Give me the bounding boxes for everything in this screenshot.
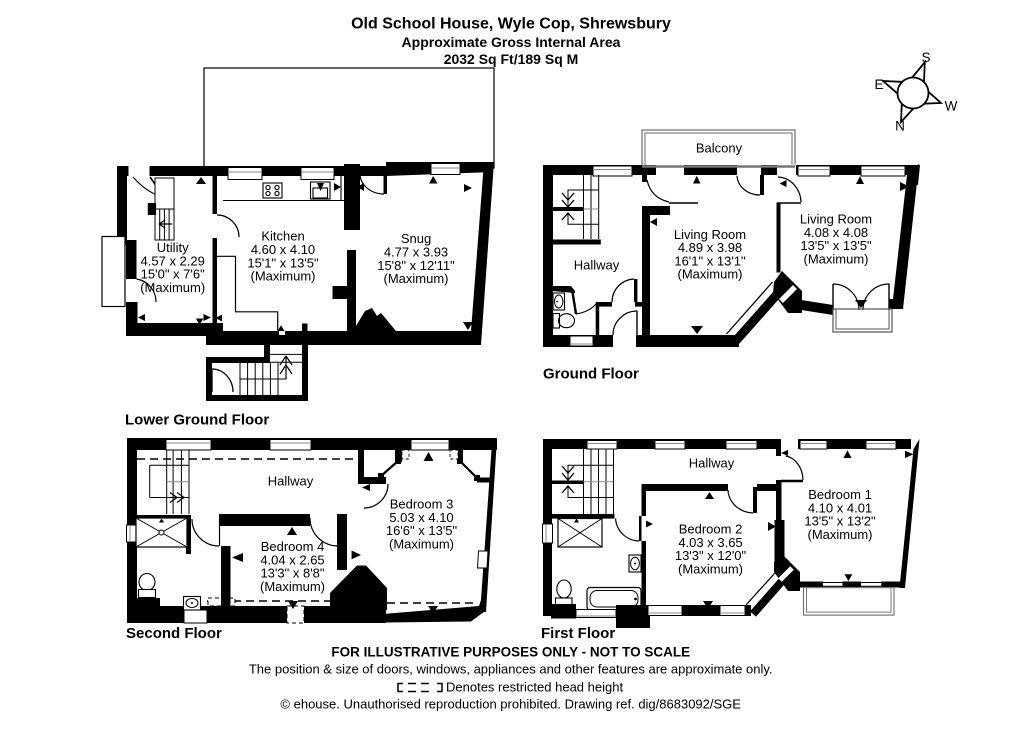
svg-text:(Maximum): (Maximum) bbox=[251, 269, 316, 284]
svg-text:Ground Floor: Ground Floor bbox=[543, 366, 639, 383]
svg-text:First Floor: First Floor bbox=[541, 625, 615, 642]
svg-text:Approximate Gross Internal Are: Approximate Gross Internal Area bbox=[402, 34, 621, 50]
svg-text:(Maximum): (Maximum) bbox=[389, 536, 454, 551]
svg-text:Denotes restricted head height: Denotes restricted head height bbox=[446, 679, 623, 694]
svg-text:(Maximum): (Maximum) bbox=[678, 561, 743, 576]
svg-text:(Maximum): (Maximum) bbox=[804, 251, 869, 266]
svg-text:N: N bbox=[895, 119, 905, 134]
svg-text:(Maximum): (Maximum) bbox=[678, 267, 743, 282]
svg-text:S: S bbox=[921, 50, 930, 65]
svg-text:(Maximum): (Maximum) bbox=[384, 271, 449, 286]
svg-text:E: E bbox=[874, 77, 883, 92]
svg-text:Hallway: Hallway bbox=[268, 474, 314, 489]
svg-text:(Maximum): (Maximum) bbox=[808, 527, 873, 542]
svg-text:(Maximum): (Maximum) bbox=[140, 280, 205, 295]
svg-text:Hallway: Hallway bbox=[574, 258, 620, 273]
svg-text:2032 Sq Ft/189 Sq M: 2032 Sq Ft/189 Sq M bbox=[444, 51, 579, 67]
svg-text:(Maximum): (Maximum) bbox=[260, 579, 325, 594]
svg-text:Old School House, Wyle Cop, Sh: Old School House, Wyle Cop, Shrewsbury bbox=[351, 16, 671, 33]
svg-text:© ehouse. Unauthorised reprodu: © ehouse. Unauthorised reproduction proh… bbox=[280, 696, 741, 711]
svg-text:Balcony: Balcony bbox=[696, 141, 743, 156]
svg-text:The position & size of doors,: The position & size of doors, windows, a… bbox=[249, 662, 773, 677]
svg-text:FOR ILLUSTRATIVE PURPOSES ONLY: FOR ILLUSTRATIVE PURPOSES ONLY - NOT TO … bbox=[331, 645, 690, 660]
svg-text:Hallway: Hallway bbox=[689, 456, 735, 471]
svg-text:Lower Ground Floor: Lower Ground Floor bbox=[125, 412, 269, 429]
svg-text:W: W bbox=[945, 99, 958, 114]
svg-text:Second Floor: Second Floor bbox=[126, 625, 222, 642]
